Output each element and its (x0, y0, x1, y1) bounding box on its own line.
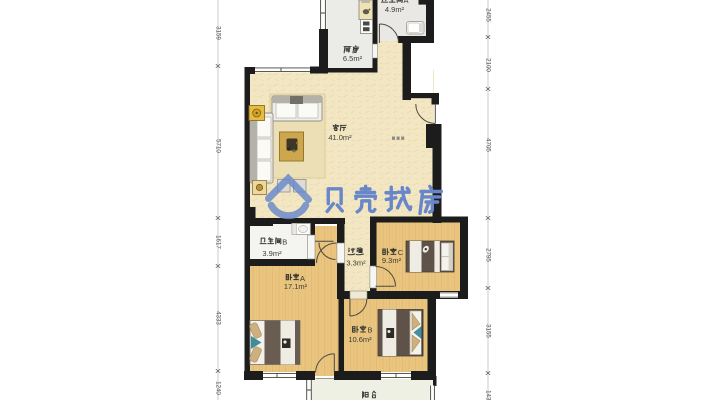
svg-text:10.6m²: 10.6m² (348, 335, 372, 344)
svg-text:3159: 3159 (215, 26, 222, 40)
svg-text:41.0m²: 41.0m² (328, 133, 352, 142)
svg-text:1435: 1435 (485, 390, 492, 400)
svg-text:3155: 3155 (485, 324, 492, 338)
svg-text:2795: 2795 (485, 248, 492, 262)
svg-text:4.9m²: 4.9m² (385, 5, 405, 14)
svg-text:17.1m²: 17.1m² (284, 282, 308, 291)
svg-text:1240: 1240 (215, 381, 222, 395)
svg-text:4333: 4333 (215, 311, 222, 325)
svg-text:1617: 1617 (215, 235, 222, 249)
svg-text:3.3m²: 3.3m² (346, 258, 366, 267)
svg-text:9.3m²: 9.3m² (382, 256, 402, 265)
svg-text:2455: 2455 (485, 8, 492, 22)
svg-text:A: A (404, 0, 409, 5)
svg-text:B: B (282, 238, 287, 247)
svg-text:B: B (368, 326, 373, 335)
svg-text:6.5m²: 6.5m² (343, 54, 363, 63)
svg-text:4705: 4705 (485, 138, 492, 152)
svg-text:2100: 2100 (485, 58, 492, 72)
svg-text:3.9m²: 3.9m² (262, 249, 282, 258)
svg-text:5710: 5710 (215, 139, 222, 153)
